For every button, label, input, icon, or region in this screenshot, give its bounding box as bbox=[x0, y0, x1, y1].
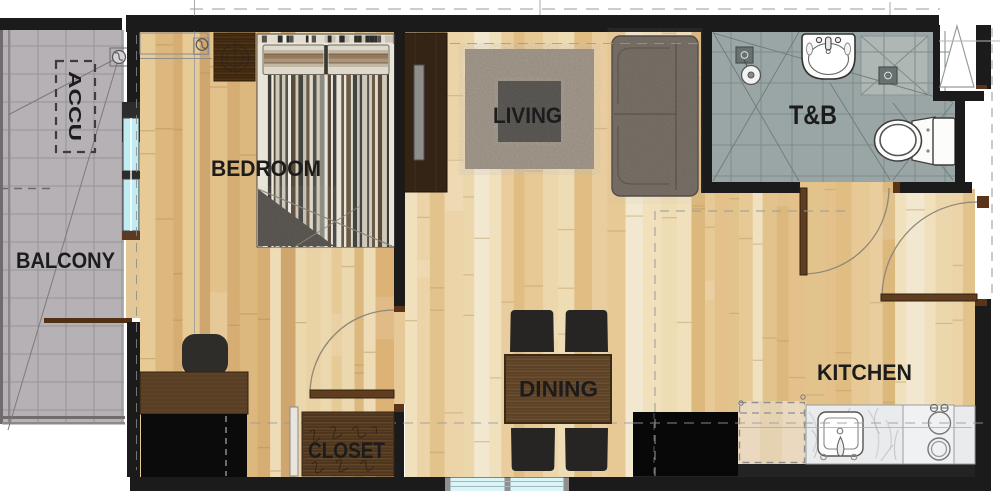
svg-text:BALCONY: BALCONY bbox=[16, 248, 115, 273]
svg-text:KITCHEN: KITCHEN bbox=[817, 360, 912, 385]
svg-text:ACCU: ACCU bbox=[65, 71, 85, 141]
svg-text:BEDROOM: BEDROOM bbox=[211, 156, 321, 181]
svg-text:DINING: DINING bbox=[519, 377, 598, 402]
svg-text:CLOSET: CLOSET bbox=[308, 438, 385, 463]
svg-text:T&B: T&B bbox=[789, 100, 837, 130]
svg-text:LIVING: LIVING bbox=[493, 103, 562, 128]
